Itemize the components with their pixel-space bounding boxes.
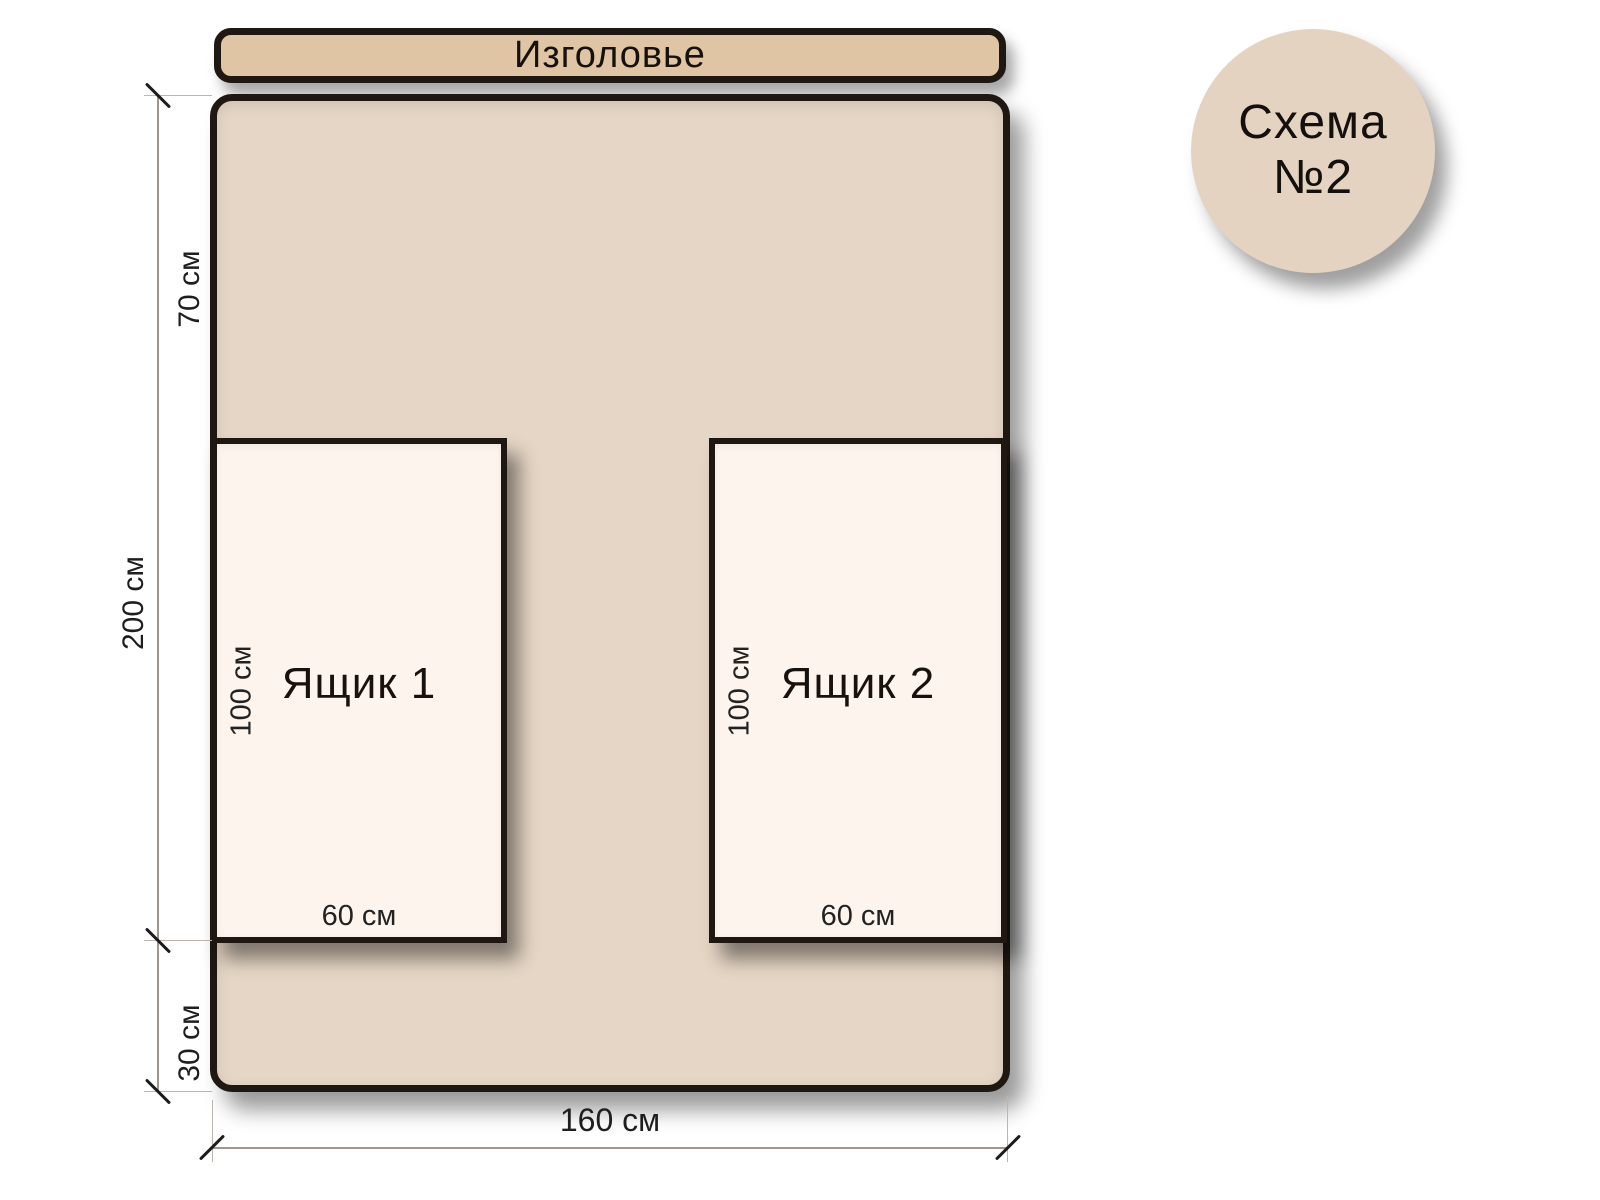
headboard: Изголовье (214, 28, 1006, 83)
scheme-badge-line2: №2 (1273, 151, 1353, 206)
extension-line-drawer-bottom (144, 940, 212, 941)
drawer-2-width-label: 60 см (715, 900, 1001, 933)
dimension-line-horizontal (212, 1147, 1008, 1149)
headboard-label: Изголовье (514, 34, 706, 77)
drawer-2: 100 см Ящик 2 60 см (709, 438, 1007, 943)
bed-scheme-diagram: Изголовье 100 см Ящик 1 60 см 100 см Ящи… (0, 0, 1600, 1200)
extension-line-top (144, 95, 212, 96)
scheme-badge-line1: Схема (1238, 96, 1388, 151)
extension-line-bottom-right (1007, 1096, 1008, 1162)
dim-label-total-width: 160 см (510, 1102, 710, 1139)
drawer-2-height-label: 100 см (724, 636, 757, 746)
drawer-2-name: Ящик 2 (781, 659, 936, 709)
scheme-badge: Схема №2 (1191, 29, 1435, 273)
dim-label-bottom-gap: 30 см (173, 983, 207, 1103)
drawer-1-height-label: 100 см (226, 636, 259, 746)
dim-label-total-height: 200 см (117, 533, 151, 673)
drawer-1-width-label: 60 см (217, 900, 501, 933)
drawer-1: 100 см Ящик 1 60 см (211, 438, 507, 943)
extension-line-bottom-left (212, 1100, 213, 1162)
dim-label-top-gap: 70 см (173, 229, 207, 349)
drawer-1-name: Ящик 1 (282, 659, 437, 709)
